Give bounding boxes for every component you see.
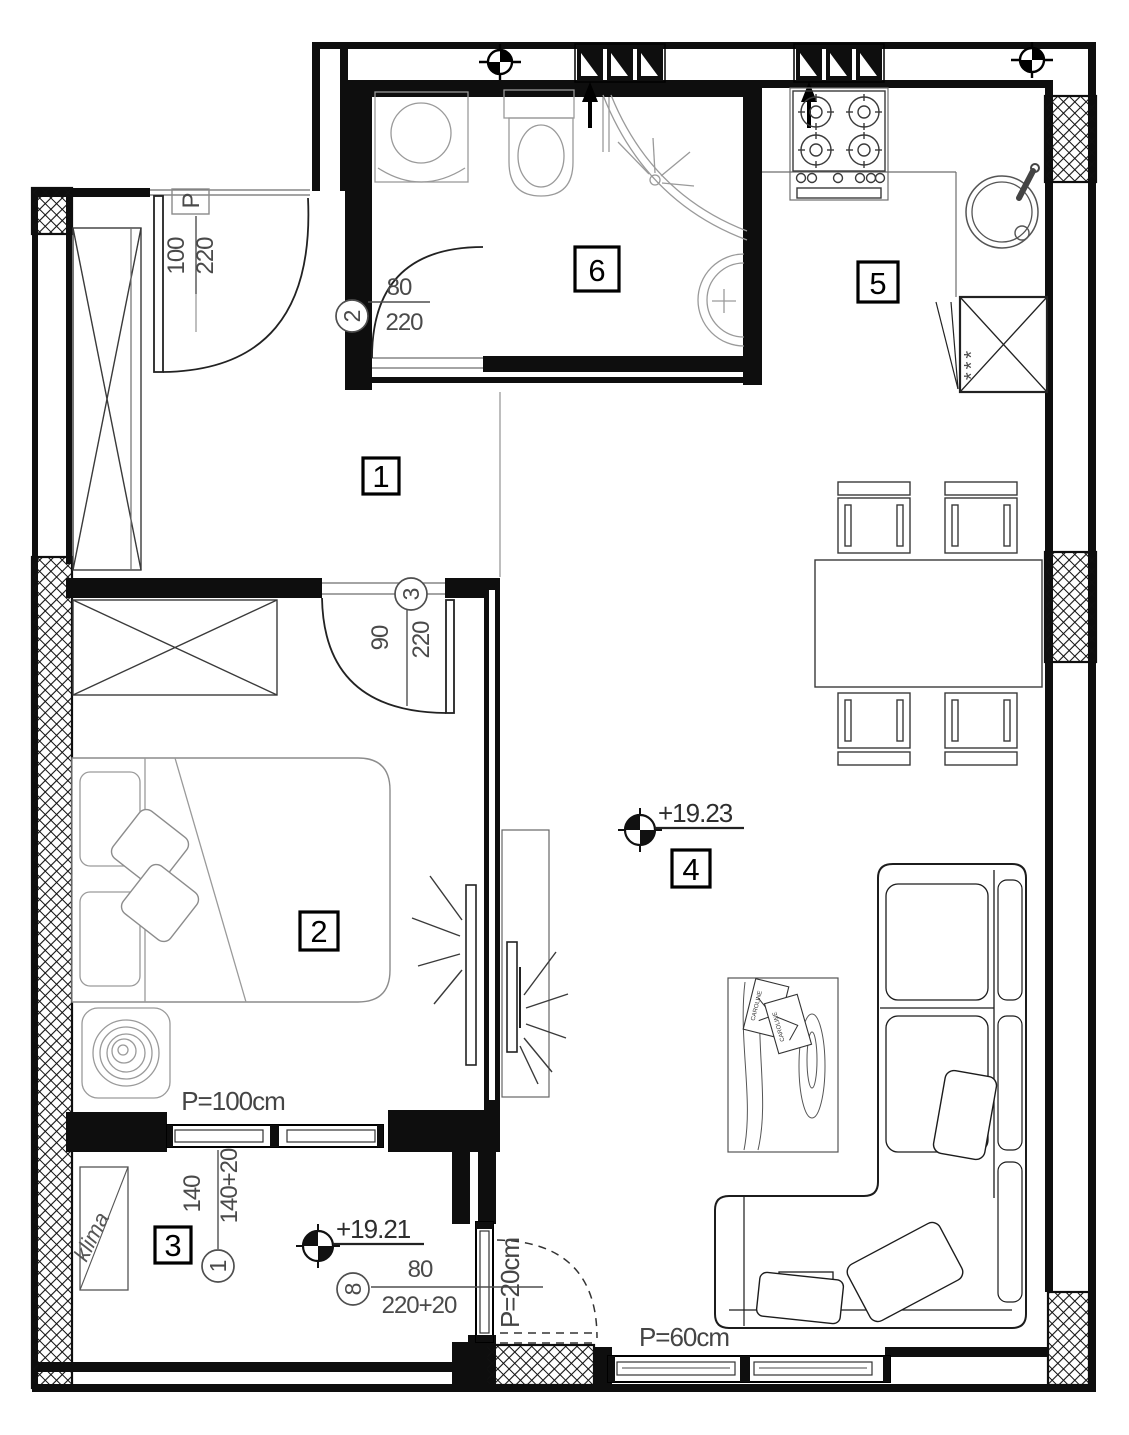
living-window-parapet: P=60cm: [639, 1322, 729, 1352]
loggia-door-height: 220+20: [382, 1292, 457, 1319]
room-number: 2: [310, 914, 327, 949]
room-label-living: 4: [672, 850, 710, 887]
entrance-door-type-label: P: [178, 193, 205, 208]
fridge-frost-label: ***: [961, 348, 983, 380]
elevation-loggia-value: +19.21: [336, 1214, 411, 1244]
floor-plan-drawing: ***: [0, 0, 1129, 1435]
loggia-window-parapet: P=100cm: [181, 1086, 285, 1116]
room-number: 5: [869, 266, 886, 301]
room-label-hall: 1: [363, 458, 399, 494]
loggia-window-height: 140+20: [216, 1148, 243, 1223]
bedroom-door-tag: 3: [398, 588, 424, 601]
loggia-window: [167, 1125, 383, 1147]
bedroom-door-width: 90: [367, 625, 394, 650]
sofa-pillow: [756, 1272, 844, 1325]
vent-group-b-icon: [796, 46, 882, 80]
room-number: 3: [164, 1228, 181, 1263]
room-label-loggia: 3: [155, 1227, 191, 1263]
loggia-door-parapet: P=20cm: [495, 1238, 525, 1328]
floor-plan-canvas: ***: [0, 0, 1129, 1435]
room-label-bedroom: 2: [300, 912, 338, 950]
room-number: 6: [588, 253, 605, 288]
living-tv-icon: [507, 942, 517, 1052]
room-number: 4: [682, 852, 699, 887]
loggia-door-tag: 8: [340, 1283, 366, 1296]
room-number: 1: [372, 459, 389, 494]
rug: CAROLINE CAROLINE: [728, 978, 838, 1152]
room-label-kitchen: 5: [858, 262, 898, 302]
living-window: [608, 1356, 890, 1382]
room-label-bathroom: 6: [575, 247, 619, 291]
loggia-window-tag: 1: [205, 1260, 231, 1273]
bathroom-door-width: 80: [387, 274, 412, 301]
bed: [72, 758, 390, 1002]
bedroom-door-height: 220: [408, 621, 435, 659]
loggia-window-width: 140: [179, 1175, 206, 1213]
elevation-living-value: +19.23: [658, 798, 733, 828]
vent-group-a-icon: [577, 46, 663, 80]
loggia-door-width: 80: [408, 1256, 433, 1283]
bathroom-door-tag: 2: [339, 310, 365, 323]
bathroom-door-height: 220: [385, 309, 423, 336]
entrance-width: 100: [163, 237, 190, 275]
